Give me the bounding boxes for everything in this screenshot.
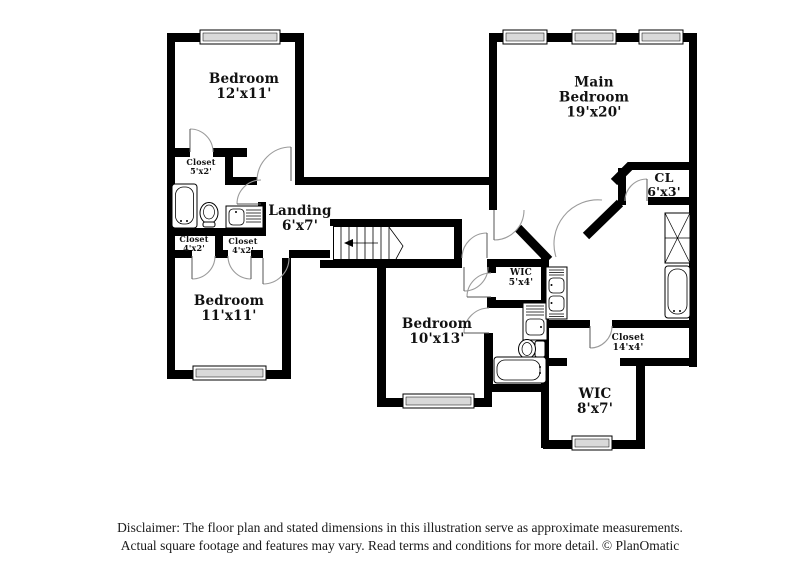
room-dims: 6'x3' — [647, 185, 681, 199]
room-dims: 8'x7' — [577, 402, 613, 417]
room-dims: 10'x13' — [402, 332, 472, 347]
room-label-cl-6x3: CL 6'x3' — [647, 171, 681, 199]
window — [503, 30, 547, 44]
room-name: Main Bedroom — [558, 75, 630, 105]
room-name: Landing — [268, 204, 331, 219]
door-arc — [625, 179, 647, 201]
room-name: Bedroom — [194, 294, 264, 309]
room-dims: 6'x7' — [268, 219, 331, 234]
room-dims: 14'x4' — [612, 343, 645, 353]
toilet — [519, 340, 546, 359]
bathtub — [665, 266, 690, 318]
window — [193, 366, 266, 380]
window — [403, 394, 474, 408]
window — [639, 30, 683, 44]
door-arc — [464, 267, 488, 291]
disclaimer-line-1: Disclaimer: The floor plan and stated di… — [0, 519, 800, 537]
window — [200, 30, 280, 44]
room-label-main-bedroom: Main Bedroom 19'x20' — [558, 75, 630, 120]
room-name: Closet — [612, 333, 645, 343]
door-arc — [590, 326, 612, 348]
window — [572, 30, 616, 44]
room-name: WIC — [509, 268, 533, 278]
door-arc — [228, 256, 251, 279]
room-label-bedroom-12x11: Bedroom 12'x11' — [209, 72, 279, 102]
room-label-landing: Landing 6'x7' — [268, 204, 331, 234]
door-arc — [190, 129, 213, 152]
bathtub — [494, 357, 546, 383]
room-dims: 5'x2' — [186, 167, 215, 176]
disclaimer-line-2: Actual square footage and features may v… — [0, 537, 800, 555]
room-name: CL — [647, 171, 681, 185]
floor-plan: Bedroom 12'x11' Main Bedroom 19'x20' Lan… — [0, 0, 800, 582]
floor-plan-drawing — [0, 0, 800, 582]
sink-vanity — [226, 206, 263, 228]
room-name: WIC — [577, 387, 613, 402]
room-label-wic-8x7: WIC 8'x7' — [577, 387, 613, 417]
shower — [665, 213, 690, 263]
sink-vanity — [523, 303, 547, 340]
window — [572, 436, 612, 450]
double-sink-vanity — [546, 267, 567, 319]
toilet — [200, 203, 218, 228]
room-label-closet-4x2-left: Closet 4'x2' — [179, 235, 208, 253]
stairs — [334, 227, 455, 260]
room-dims: 5'x4' — [509, 278, 533, 288]
room-dims: 11'x11' — [194, 309, 264, 324]
room-name: Bedroom — [209, 72, 279, 87]
room-name: Bedroom — [402, 317, 472, 332]
room-label-bedroom-10x13: Bedroom 10'x13' — [402, 317, 472, 347]
room-dims: 4'x2' — [179, 244, 208, 253]
room-label-wic-5x4: WIC 5'x4' — [509, 268, 533, 288]
room-dims: 19'x20' — [558, 106, 630, 121]
bathtub — [172, 184, 197, 228]
room-dims: 12'x11' — [209, 87, 279, 102]
room-label-bedroom-11x11: Bedroom 11'x11' — [194, 294, 264, 324]
door-arc — [462, 233, 487, 258]
room-label-closet-14x4: Closet 14'x4' — [612, 333, 645, 353]
door-arc — [467, 273, 491, 297]
door-arc — [257, 147, 291, 181]
wall-diagonal-segments — [518, 165, 631, 260]
disclaimer-text: Disclaimer: The floor plan and stated di… — [0, 519, 800, 554]
room-dims: 4'x2' — [228, 246, 257, 255]
room-label-closet-4x2-right: Closet 4'x2' — [228, 237, 257, 255]
room-label-closet-5x2: Closet 5'x2' — [186, 158, 215, 176]
door-arc — [192, 256, 215, 279]
